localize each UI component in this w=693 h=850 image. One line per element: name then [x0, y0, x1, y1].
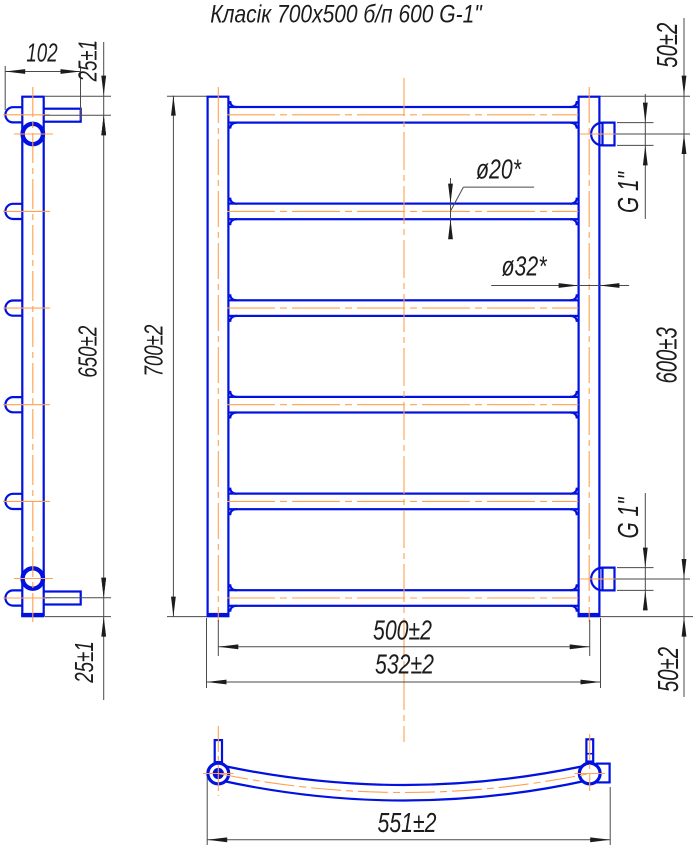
svg-text:ø32*: ø32* — [502, 251, 548, 283]
svg-text:25±1: 25±1 — [69, 641, 99, 683]
svg-text:50±2: 50±2 — [652, 23, 684, 68]
svg-text:G 1": G 1" — [613, 497, 645, 539]
svg-text:ø20*: ø20* — [476, 154, 522, 186]
svg-text:650±2: 650±2 — [72, 325, 102, 377]
svg-text:532±2: 532±2 — [375, 649, 434, 681]
svg-text:600±3: 600±3 — [651, 327, 683, 383]
svg-text:Класік 700х500 б/п 600 G-1": Класік 700х500 б/п 600 G-1" — [210, 0, 483, 28]
svg-text:G 1": G 1" — [613, 171, 645, 213]
svg-text:500±2: 500±2 — [373, 615, 432, 647]
svg-text:551±2: 551±2 — [377, 807, 436, 839]
svg-text:25±1: 25±1 — [72, 40, 102, 82]
svg-text:102: 102 — [26, 37, 58, 67]
svg-text:50±2: 50±2 — [653, 647, 685, 692]
svg-text:700±2: 700±2 — [138, 324, 168, 376]
